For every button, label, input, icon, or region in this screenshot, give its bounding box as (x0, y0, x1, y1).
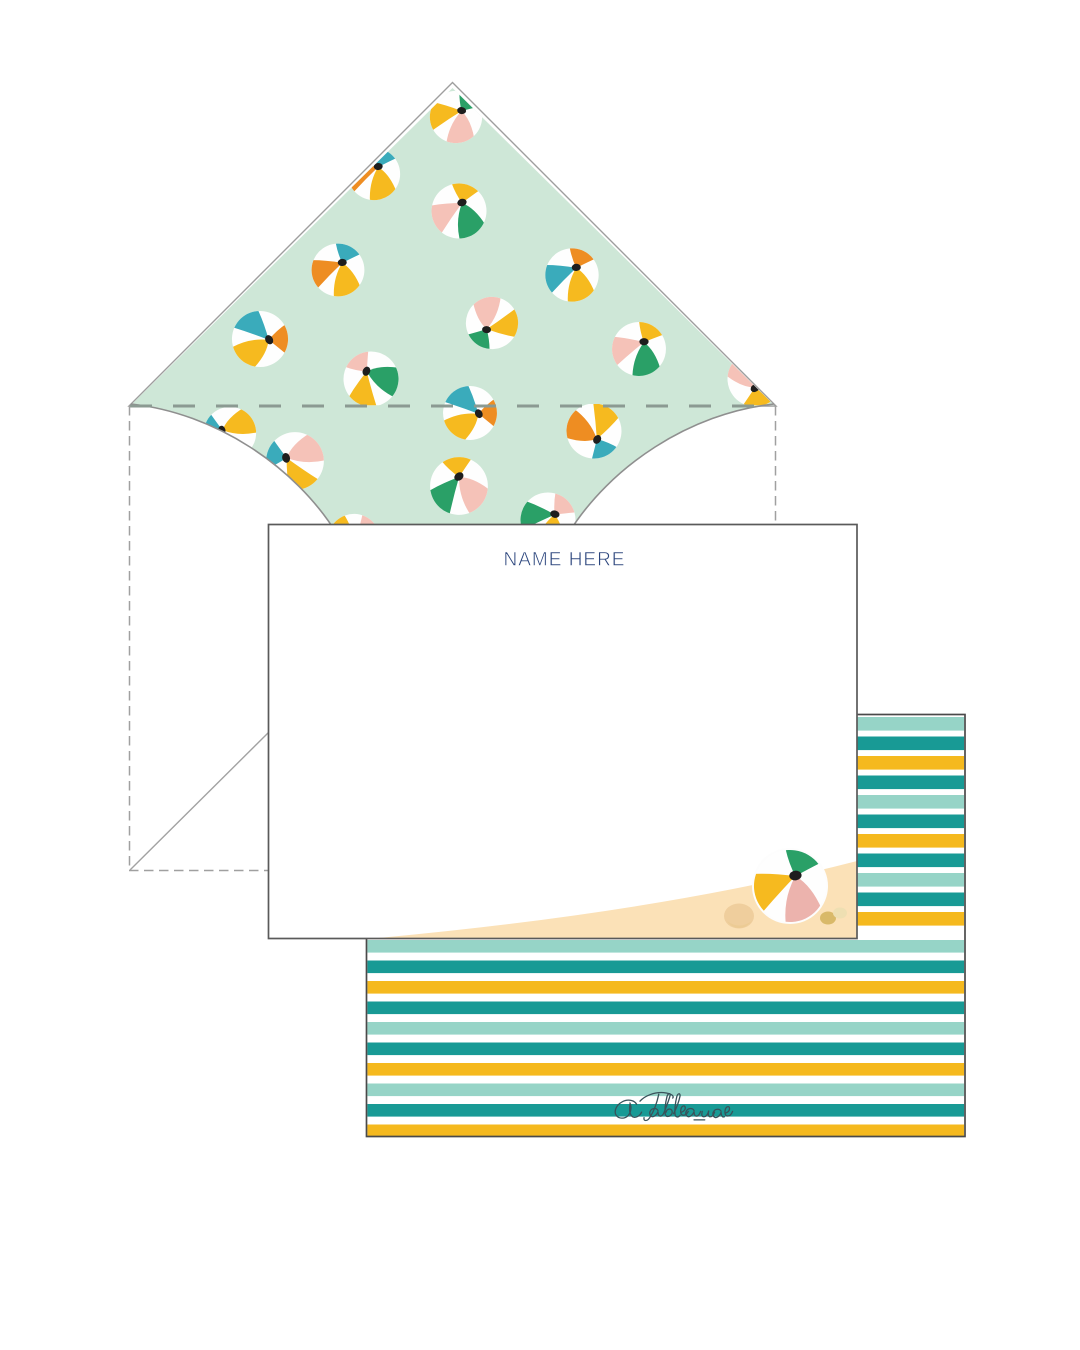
svg-text:NAME HERE: NAME HERE (504, 550, 626, 571)
